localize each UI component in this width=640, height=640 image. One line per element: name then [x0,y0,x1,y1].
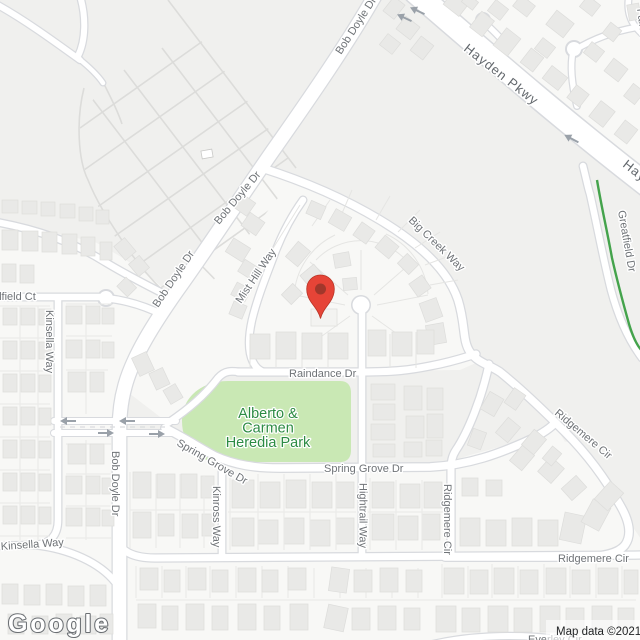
svg-text:Kinross Way: Kinross Way [210,486,222,548]
svg-text:Spring Grove Dr: Spring Grove Dr [324,463,404,475]
svg-text:Ridgemere Cir: Ridgemere Cir [441,484,453,555]
svg-text:ldfield Ct: ldfield Ct [0,291,36,303]
svg-text:Hightrail Way: Hightrail Way [357,483,369,548]
svg-text:Raindance Dr: Raindance Dr [289,368,357,380]
svg-text:Google: Google [8,610,111,638]
svg-text:Ridgemere Cir: Ridgemere Cir [558,553,629,565]
svg-text:Heredia Park: Heredia Park [226,435,311,451]
svg-text:Map data ©2021: Map data ©2021 [556,626,640,638]
svg-text:Kinsella Way: Kinsella Way [43,310,55,374]
svg-text:Bob Doyle Dr: Bob Doyle Dr [109,451,121,517]
